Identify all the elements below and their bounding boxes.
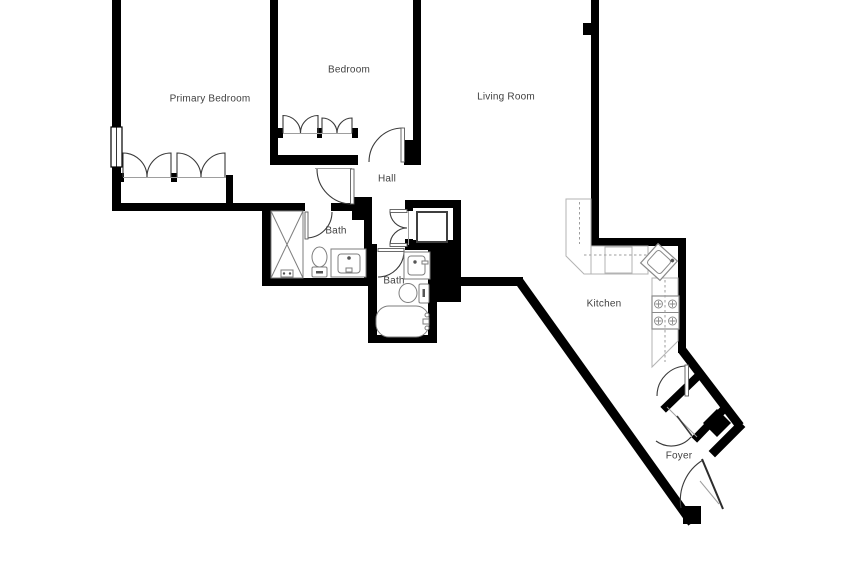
shower-icon xyxy=(271,211,303,278)
bedroom-closet-bifold-doors-icon xyxy=(283,116,352,134)
room-label-bath-2: Bath xyxy=(383,276,404,287)
room-label-hall: Hall xyxy=(378,174,396,185)
toilet-icon xyxy=(312,247,327,277)
bathtub-icon xyxy=(376,306,429,337)
vanity-sink-2-icon xyxy=(404,252,430,279)
room-label-living-room: Living Room xyxy=(477,92,535,103)
room-label-bath-1: Bath xyxy=(325,226,346,237)
vanity-sink-icon xyxy=(331,249,366,277)
floor-plan-drawing xyxy=(0,0,850,570)
room-label-kitchen: Kitchen xyxy=(587,299,622,310)
kitchen-counters xyxy=(566,199,678,367)
hall-door-icon xyxy=(315,169,354,205)
bath2-door-icon xyxy=(378,249,404,278)
room-label-foyer: Foyer xyxy=(666,451,693,462)
water-heater-icon xyxy=(417,212,447,242)
dishwasher-icon xyxy=(605,247,632,273)
room-label-bedroom: Bedroom xyxy=(328,65,370,76)
foyer-closet-door-icon xyxy=(656,407,697,446)
entry-door-icon xyxy=(680,459,723,509)
bedroom-door-icon xyxy=(369,128,405,162)
window-icon xyxy=(111,127,122,167)
floor-plan-canvas: Primary Bedroom Bedroom Living Room Hall… xyxy=(0,0,850,570)
room-label-primary-bedroom: Primary Bedroom xyxy=(170,94,251,105)
